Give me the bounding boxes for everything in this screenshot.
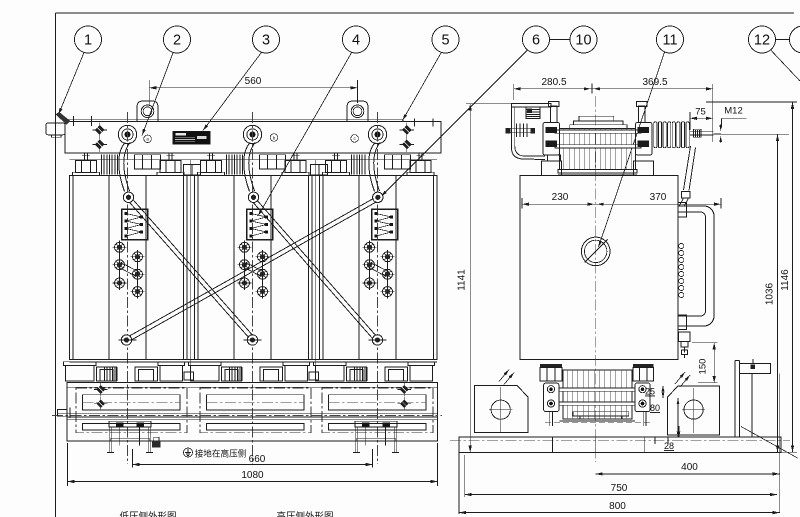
svg-text:3: 3 <box>262 33 270 49</box>
svg-text:750: 750 <box>611 483 628 494</box>
svg-text:12: 12 <box>754 33 770 49</box>
svg-text:1141: 1141 <box>457 269 468 291</box>
svg-text:低压侧外形图: 低压侧外形图 <box>119 511 176 517</box>
svg-text:M12: M12 <box>724 106 742 117</box>
svg-text:400: 400 <box>681 462 698 473</box>
svg-text:230: 230 <box>552 192 569 203</box>
svg-text:10: 10 <box>575 33 591 49</box>
svg-text:4: 4 <box>352 33 360 49</box>
svg-text:1146: 1146 <box>780 269 791 291</box>
svg-text:660: 660 <box>249 454 266 465</box>
svg-text:560: 560 <box>245 76 262 87</box>
svg-text:接地在高压侧: 接地在高压侧 <box>195 448 247 459</box>
svg-text:280.5: 280.5 <box>541 77 566 88</box>
svg-text:150: 150 <box>698 359 709 375</box>
svg-text:25: 25 <box>645 387 655 397</box>
svg-text:高压侧外形图: 高压侧外形图 <box>276 511 333 517</box>
svg-text:1080: 1080 <box>241 470 264 481</box>
svg-text:370: 370 <box>650 192 667 203</box>
svg-text:369.5: 369.5 <box>642 77 667 88</box>
svg-text:1: 1 <box>84 33 92 49</box>
svg-text:800: 800 <box>609 501 626 512</box>
svg-text:11: 11 <box>662 33 677 49</box>
svg-text:6: 6 <box>532 33 540 49</box>
svg-text:5: 5 <box>441 33 449 49</box>
svg-text:75: 75 <box>695 107 706 118</box>
svg-text:1036: 1036 <box>765 282 776 305</box>
svg-text:28: 28 <box>664 441 674 451</box>
svg-text:2: 2 <box>173 33 181 49</box>
svg-text:80: 80 <box>650 403 660 413</box>
